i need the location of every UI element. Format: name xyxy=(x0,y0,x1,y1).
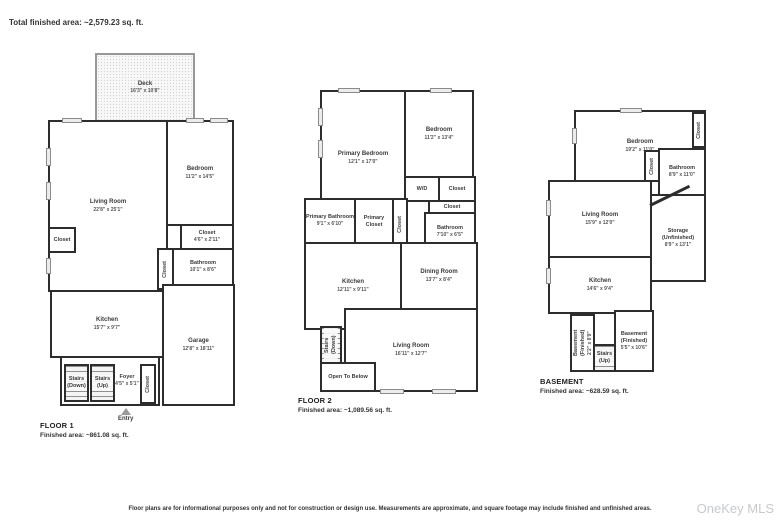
floor1-bedroom: Bedroom11'2" x 14'5" xyxy=(166,120,234,226)
window-mark xyxy=(46,182,51,200)
onekey-mls-watermark: OneKey MLS xyxy=(697,501,774,516)
basement-stairs-up: Stairs (Up) xyxy=(593,344,616,372)
floor1-stairs-down: Stairs (Down) xyxy=(64,364,89,402)
floor2-open-to-below: Open To Below xyxy=(320,362,376,392)
floor1-closet-left: Closet xyxy=(48,227,76,253)
window-mark xyxy=(380,389,404,394)
basement-title: BASEMENT xyxy=(540,377,584,386)
floor1-area: Finished area: ~861.08 sq. ft. xyxy=(40,432,129,439)
window-mark xyxy=(210,118,228,123)
window-mark xyxy=(46,258,51,274)
basement-kitchen: Kitchen14'6" x 9'4" xyxy=(548,256,652,314)
basement-closet-mid: Closet xyxy=(644,150,660,182)
window-mark xyxy=(546,268,551,284)
floor1-entry: Entry xyxy=(118,408,133,422)
window-mark xyxy=(186,118,204,123)
window-mark xyxy=(430,88,452,93)
floor2-area: Finished area: ~1,089.56 sq. ft. xyxy=(298,407,392,414)
basement-finished: Basement (Finished)5'5" x 10'6" xyxy=(614,310,654,372)
floor1-kitchen: Kitchen15'7" x 9'7" xyxy=(50,290,164,358)
window-mark xyxy=(432,389,456,394)
floor1-bathroom: Bathroom10'1" x 8'6" xyxy=(172,248,234,286)
basement-living-room: Living Room15'9" x 12'0" xyxy=(548,180,652,258)
floor1-closet-entry: Closet xyxy=(140,364,156,404)
window-mark xyxy=(620,108,642,113)
basement-storage: Storage (Unfinished)8'9" x 13'1" xyxy=(650,194,706,282)
window-mark xyxy=(318,140,323,158)
basement-closet-top: Closet xyxy=(692,112,706,148)
floor1-garage: Garage12'8" x 18'11" xyxy=(162,284,235,406)
disclaimer: Floor plans are for informational purpos… xyxy=(0,506,780,512)
window-mark xyxy=(62,118,82,123)
floor2-stairs-down: Stairs (Down) xyxy=(320,326,342,364)
floor1-stairs-up: Stairs (Up) xyxy=(90,364,115,402)
window-mark xyxy=(546,200,551,216)
entry-arrow-icon xyxy=(121,408,131,415)
floor1-deck: Deck16'3" x 10'8" xyxy=(95,53,195,122)
floor-plan-sheet: Total finished area: ~2,579.23 sq. ft. D… xyxy=(0,0,780,520)
window-mark xyxy=(46,148,51,166)
window-mark xyxy=(572,128,577,144)
floor2-title: FLOOR 2 xyxy=(298,396,332,405)
floor1-living-room: Living Room22'8" x 25'1" xyxy=(48,120,168,292)
floor1-closet-bedroom: Closet4'6" x 2'11" xyxy=(180,224,234,250)
floor2-dining-room: Dining Room13'7" x 8'4" xyxy=(400,242,478,310)
window-mark xyxy=(318,108,323,126)
floor2-wd: W/D xyxy=(404,176,440,202)
floor1-title: FLOOR 1 xyxy=(40,421,74,430)
basement-finished-small: Basement (Finished)2'2" x 8'9" xyxy=(570,314,595,372)
floor2-primary-closet: Primary Closet xyxy=(354,198,394,246)
window-mark xyxy=(338,88,360,93)
total-finished-area: Total finished area: ~2,579.23 sq. ft. xyxy=(9,18,143,27)
floor2-primary-bathroom: Primary Bathroom9'1" x 6'10" xyxy=(304,198,356,244)
floor2-bedroom: Bedroom11'2" x 13'4" xyxy=(404,90,474,178)
floor2-closet-wd: Closet xyxy=(438,176,476,202)
floor1-foyer: Foyer4'5" x 5'1" xyxy=(114,360,140,402)
basement-area: Finished area: ~628.59 sq. ft. xyxy=(540,388,629,395)
